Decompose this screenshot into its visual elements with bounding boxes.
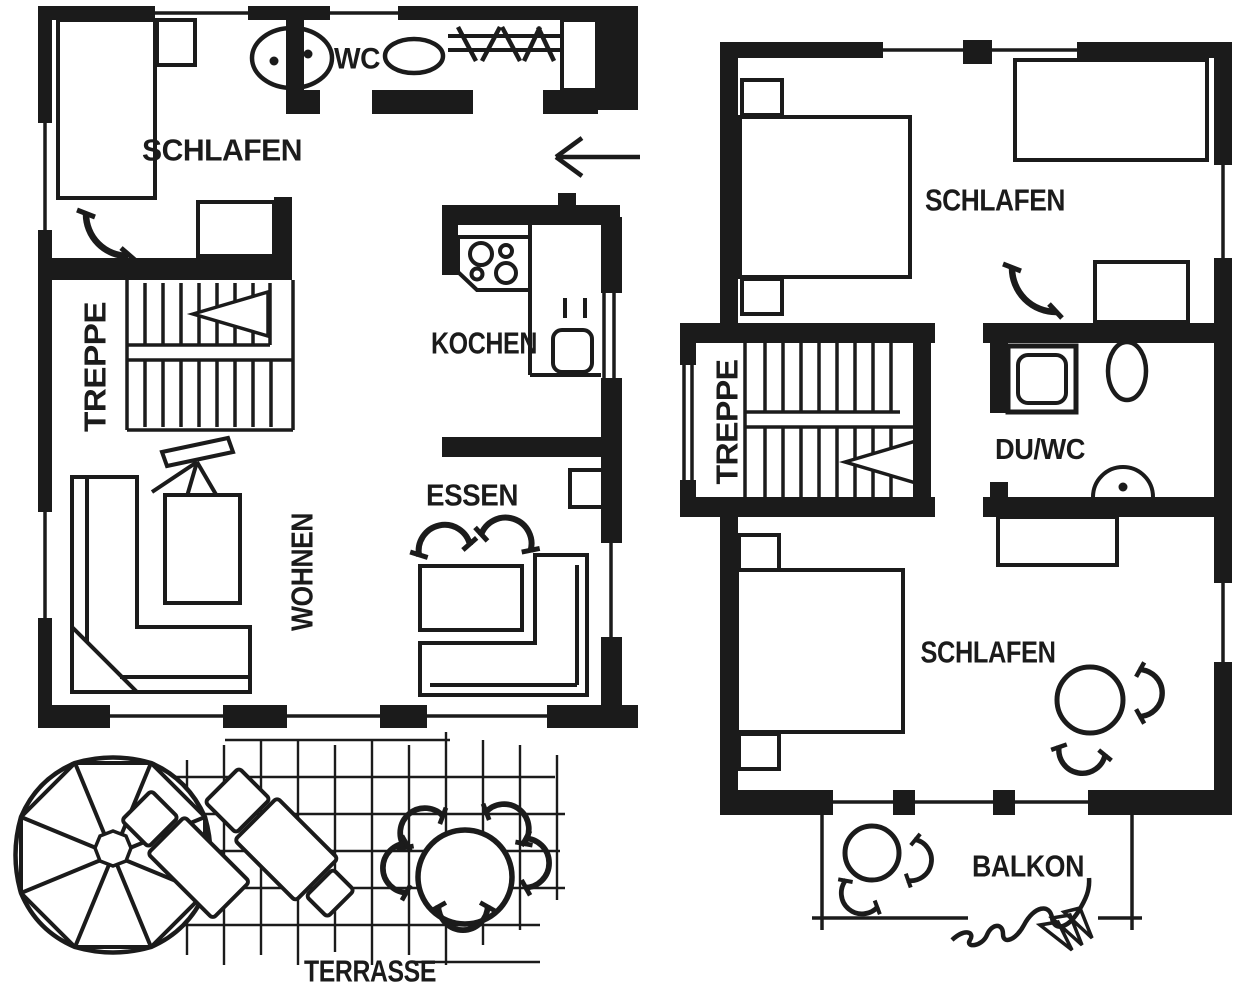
- dresser-icon: [998, 517, 1117, 565]
- toilet-icon: [1108, 342, 1146, 400]
- nightstand-icon: [742, 80, 782, 115]
- chair-icon: [1048, 742, 1113, 778]
- nightstand-icon: [157, 20, 195, 65]
- room-label-duwc: DU/WC: [995, 434, 1086, 466]
- room-label-treppe-upper: TREPPE: [710, 360, 745, 485]
- stairs-icon: [127, 280, 293, 430]
- room-label-essen: ESSEN: [426, 478, 518, 513]
- room-label-kochen: KOCHEN: [431, 326, 537, 361]
- room-label-schlafen-ground: SCHLAFEN: [142, 133, 302, 168]
- stairs-icon: [745, 343, 916, 497]
- room-label-schlafen-upper-1: SCHLAFEN: [925, 183, 1065, 218]
- room-label-terrasse: TERRASSE: [304, 954, 436, 989]
- wardrobe-icon: [448, 20, 597, 90]
- sink-icon: [553, 298, 592, 372]
- wardrobe-icon: [1015, 60, 1207, 160]
- bed-icon: [737, 570, 903, 732]
- room-label-balkon: BALKON: [972, 849, 1084, 884]
- stairs-direction-arrow-icon: [193, 292, 268, 336]
- balcony-table-icon: [845, 826, 899, 880]
- shower-icon: [1008, 346, 1076, 412]
- floorplan-page: SCHLAFEN WC TREPPE KOCHEN ESSEN WOHNEN T…: [0, 0, 1234, 1000]
- nightstand-icon: [739, 535, 779, 570]
- chair-icon: [472, 508, 546, 557]
- door-swing-icon: [77, 210, 136, 261]
- chair-icon: [1136, 662, 1162, 723]
- toilet-icon: [385, 39, 443, 73]
- door-swing-icon: [1003, 264, 1062, 318]
- chair-icon: [383, 836, 411, 901]
- nightstand-icon: [742, 279, 782, 314]
- nightstand-icon: [739, 734, 779, 769]
- floorplan-drawing: SCHLAFEN WC TREPPE KOCHEN ESSEN WOHNEN T…: [0, 0, 1234, 1000]
- stove-icon: [458, 237, 530, 290]
- chair-icon: [904, 833, 936, 891]
- chair-icon: [522, 831, 550, 896]
- room-label-treppe-ground: TREPPE: [78, 302, 113, 432]
- room-label-wc: WC: [334, 43, 380, 76]
- room-label-wohnen: WOHNEN: [285, 513, 320, 631]
- dresser-icon: [198, 202, 274, 256]
- plant-icon: [952, 878, 1092, 950]
- upper-floor-plan: SCHLAFEN TREPPE DU/WC SCHLAFEN BALKON: [680, 40, 1232, 950]
- table-icon: [1057, 667, 1123, 733]
- dresser-icon: [1095, 262, 1188, 322]
- coffee-table-icon: [165, 495, 240, 603]
- chair-icon: [406, 518, 479, 561]
- washbasin-icon: [1093, 467, 1153, 497]
- entrance-arrow-icon: [556, 138, 640, 176]
- bed-icon: [58, 20, 155, 198]
- dining-table-icon: [420, 566, 522, 630]
- bed-icon: [740, 117, 910, 277]
- room-label-schlafen-upper-2: SCHLAFEN: [921, 635, 1056, 670]
- ground-floor-plan: SCHLAFEN WC TREPPE KOCHEN ESSEN WOHNEN T…: [16, 6, 641, 989]
